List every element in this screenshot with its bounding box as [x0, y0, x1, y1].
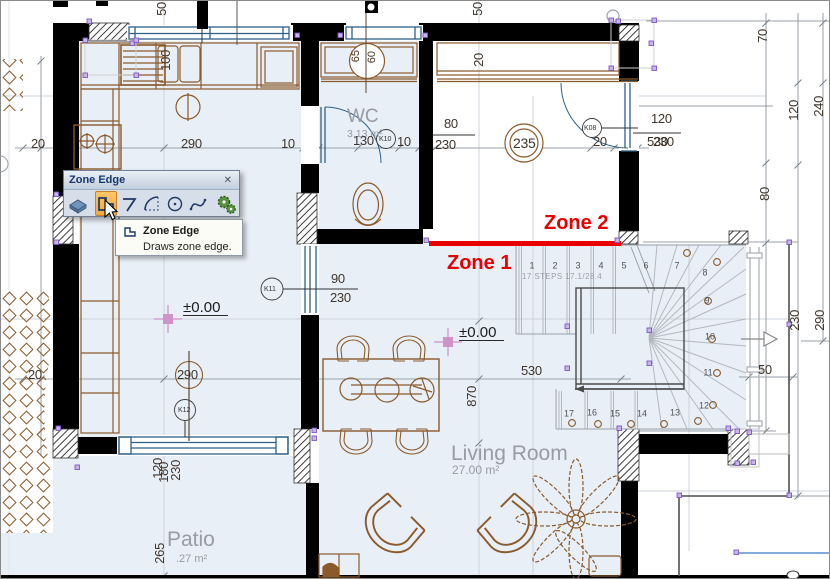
stair-step-number: 6 [643, 262, 648, 271]
room-name-wc: WC [347, 107, 379, 126]
room-area-patio: .27 m² [176, 554, 207, 565]
dim-label: 230 [653, 135, 674, 148]
stair-step-number: 10 [705, 333, 715, 342]
stair-step-number: 13 [670, 409, 680, 418]
stair-step-number: 8 [702, 269, 707, 278]
zone-edge-line[interactable] [429, 241, 621, 246]
stair-step-number: 11 [703, 369, 712, 378]
window-marker-height: 60 [367, 51, 378, 63]
dim-label: 240 [812, 96, 825, 117]
dim-label: 120 [651, 112, 672, 125]
stair-step-number: 1 [529, 262, 534, 271]
dim-label: 290 [181, 137, 202, 150]
dim-label: 50 [155, 2, 168, 16]
zone-1-label[interactable]: Zone 1 [447, 253, 511, 273]
palette-title: Zone Edge [69, 174, 222, 186]
dim-label: 230 [435, 138, 456, 151]
stair-step-number: 7 [674, 262, 679, 271]
dim-label: 10 [397, 135, 411, 148]
window-marker-width: 65 [351, 50, 362, 62]
dim-label: 50 [758, 363, 772, 376]
dim-label: 20 [31, 137, 45, 150]
palette-toolbar [64, 190, 239, 217]
stair-note: 17 STEPS 17.1/28.4 [522, 273, 602, 281]
dim-label: 20 [472, 53, 485, 67]
stair-step-number: 9 [704, 297, 709, 306]
dim-label: 870 [465, 386, 478, 407]
dim-label: 265 [153, 543, 166, 564]
gear-icon [216, 194, 236, 214]
dim-label: 100 [159, 50, 172, 71]
zone-edge-palette: Zone Edge ✕ [63, 170, 240, 217]
room-name-living: Living Room [451, 443, 568, 464]
zone-2-label[interactable]: Zone 2 [544, 213, 608, 233]
marker-k08: K08 [584, 125, 596, 132]
dim-label: 10 [281, 137, 295, 150]
marker-k10: K10 [379, 136, 391, 143]
polyline-tool-button[interactable] [118, 191, 140, 216]
close-icon[interactable]: ✕ [222, 175, 234, 186]
arc-tool-button[interactable] [141, 191, 163, 216]
circle-tool-button[interactable] [164, 191, 186, 216]
room-name-patio: Patio [167, 529, 215, 550]
dim-label: 70 [756, 29, 769, 43]
arc-icon [142, 194, 162, 214]
zone-edge-icon [123, 225, 137, 239]
dim-label: 50 [471, 2, 484, 16]
stair-step-number: 12 [699, 402, 709, 411]
mouse-cursor-icon [104, 199, 120, 221]
dim-label: 290 [177, 368, 198, 381]
room-area-living: 27.00 m² [452, 464, 499, 476]
dim-label: 530 [521, 364, 542, 377]
marker-k12: K12 [178, 407, 190, 414]
tooltip-description: Draws zone edge. [143, 241, 232, 253]
spline-tool-button[interactable] [187, 191, 209, 216]
dim-label: 20 [28, 368, 42, 381]
zone-edge-tooltip: Zone Edge Draws zone edge. [115, 219, 243, 256]
zone-slab-icon [68, 194, 88, 214]
dim-label: 90 [331, 272, 345, 285]
zone-tool-button[interactable] [67, 191, 89, 216]
stair-step-number: 14 [637, 410, 647, 419]
dim-label: 20 [593, 135, 607, 148]
marker-k11: K11 [264, 286, 276, 293]
tooltip-title: Zone Edge [143, 225, 199, 237]
stair-step-number: 2 [552, 262, 557, 271]
floor-plan-svg [1, 1, 830, 579]
settings-tool-button[interactable] [215, 191, 237, 216]
dim-label: 230 [169, 460, 182, 481]
dim-label: 130 [353, 134, 374, 147]
level-label-right: ±0.00 [459, 325, 504, 341]
circle-icon [165, 194, 185, 214]
dim-label: 230 [788, 310, 801, 331]
dim-label: 80 [758, 187, 771, 201]
dim-label: 80 [444, 117, 458, 130]
palette-titlebar[interactable]: Zone Edge ✕ [64, 171, 239, 190]
spline-icon [188, 194, 208, 214]
dim-label: 230 [330, 291, 351, 304]
dim-label: 290 [813, 310, 826, 331]
stair-step-number: 5 [621, 262, 626, 271]
stair-step-number: 15 [610, 410, 620, 419]
stair-step-number: 16 [587, 409, 597, 418]
stair-step-number: 3 [575, 262, 580, 271]
polyline-icon [119, 194, 139, 214]
cad-drawing-window: Zone 2 Zone 1 WC 3.13 m² Living Room 27.… [0, 0, 830, 579]
stair-step-number: 4 [598, 262, 603, 271]
dim-label: 120 [787, 100, 800, 121]
marker-column-235: 235 [513, 136, 535, 150]
level-label-left: ±0.00 [183, 300, 228, 316]
stair-step-number: 17 [564, 410, 574, 419]
